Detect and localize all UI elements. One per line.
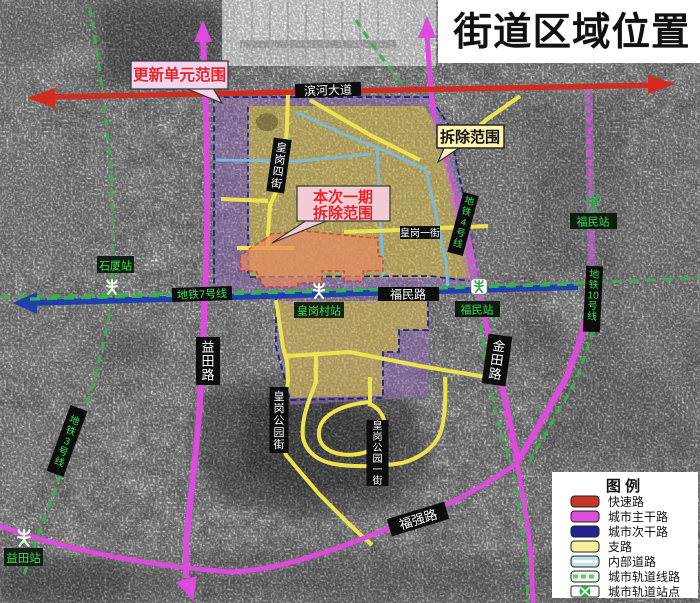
- svg-text:皇岗公园一街: 皇岗公园一街: [373, 419, 383, 487]
- svg-text:滨河大道: 滨河大道: [304, 82, 353, 99]
- svg-text:城市轨道线路: 城市轨道线路: [608, 569, 680, 584]
- svg-text:更新单元范围: 更新单元范围: [133, 65, 226, 84]
- svg-text:图 例: 图 例: [606, 477, 640, 495]
- svg-text:皇岗公园街: 皇岗公园街: [274, 389, 285, 451]
- svg-text:支路: 支路: [608, 539, 632, 554]
- svg-text:福民路: 福民路: [390, 287, 426, 302]
- svg-text:益田站: 益田站: [6, 551, 41, 565]
- svg-text:快速路: 快速路: [608, 494, 644, 509]
- svg-text:城市轨道站点: 城市轨道站点: [608, 584, 680, 599]
- svg-text:本次一期: 本次一期: [313, 188, 373, 206]
- svg-text:拆除范围: 拆除范围: [440, 128, 500, 146]
- svg-text:皇岗一街: 皇岗一街: [400, 227, 440, 240]
- svg-text:福民站: 福民站: [461, 303, 494, 317]
- svg-text:街道区域位置: 街道区域位置: [452, 11, 690, 54]
- svg-text:城市主干路: 城市主干路: [608, 509, 668, 524]
- svg-text:益田路: 益田路: [201, 340, 214, 383]
- svg-text:拆除范围: 拆除范围: [313, 204, 373, 222]
- svg-text:福民站: 福民站: [577, 215, 610, 229]
- svg-text:皇岗村站: 皇岗村站: [297, 304, 341, 318]
- svg-text:石厦站: 石厦站: [99, 259, 132, 273]
- svg-text:城市次干路: 城市次干路: [608, 524, 668, 539]
- svg-text:内部道路: 内部道路: [608, 554, 656, 569]
